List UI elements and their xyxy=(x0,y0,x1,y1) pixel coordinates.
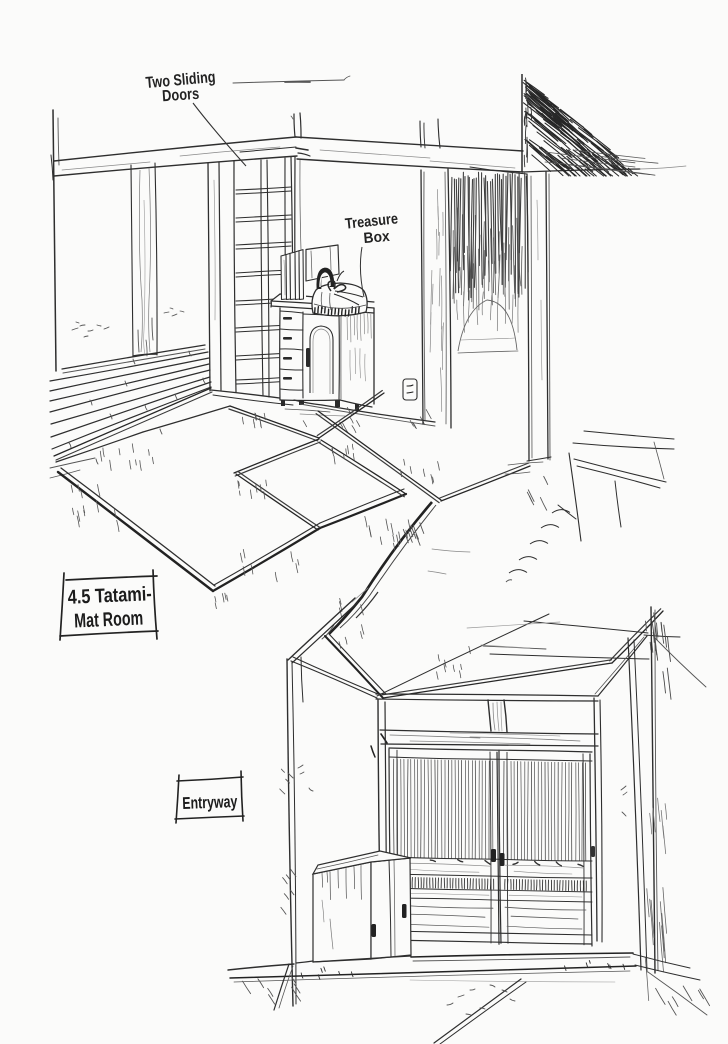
svg-text:Box: Box xyxy=(363,228,391,247)
svg-text:Doors: Doors xyxy=(162,86,200,106)
svg-text:4.5 Tatami-: 4.5 Tatami- xyxy=(67,583,152,609)
svg-text:Entryway: Entryway xyxy=(182,792,238,813)
svg-text:Mat Room: Mat Room xyxy=(74,608,144,633)
